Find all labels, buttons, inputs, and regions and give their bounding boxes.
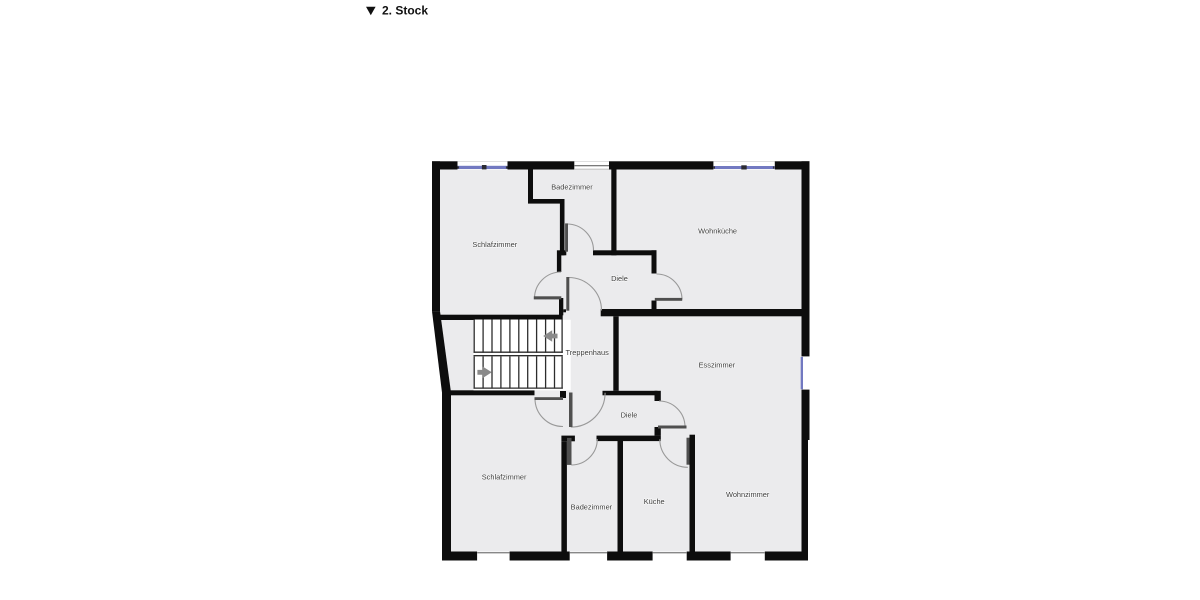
svg-text:Schlafzimmer: Schlafzimmer [472, 240, 517, 249]
svg-text:Wohnzimmer: Wohnzimmer [726, 490, 770, 499]
svg-text:Schlafzimmer: Schlafzimmer [482, 473, 527, 482]
svg-text:Küche: Küche [644, 497, 665, 506]
svg-text:Wohnküche: Wohnküche [698, 227, 737, 236]
svg-text:Diele: Diele [611, 274, 628, 283]
svg-text:Diele: Diele [621, 411, 638, 420]
svg-text:Badezimmer: Badezimmer [571, 503, 613, 512]
svg-text:Treppenhaus: Treppenhaus [566, 348, 610, 357]
svg-text:Esszimmer: Esszimmer [699, 361, 736, 370]
svg-text:Badezimmer: Badezimmer [551, 182, 593, 191]
svg-text:2. Stock: 2. Stock [382, 4, 428, 18]
